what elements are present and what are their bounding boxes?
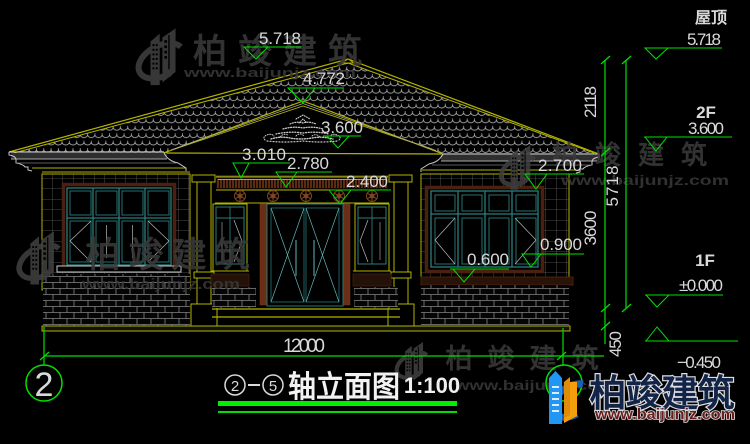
svg-text:5.718: 5.718 <box>259 29 301 48</box>
svg-text:2.780: 2.780 <box>287 154 329 173</box>
svg-text:2.700: 2.700 <box>538 156 582 175</box>
svg-text:2: 2 <box>35 366 54 404</box>
svg-text:5718: 5718 <box>603 166 622 207</box>
svg-text:轴立面图: 轴立面图 <box>288 370 400 404</box>
svg-text:5.718: 5.718 <box>687 30 721 49</box>
svg-text:±0.000: ±0.000 <box>679 276 723 295</box>
svg-text:4.772: 4.772 <box>303 69 345 88</box>
svg-text:12000: 12000 <box>283 336 325 357</box>
svg-text:2.400: 2.400 <box>346 172 388 191</box>
svg-text:3.010: 3.010 <box>242 145 286 164</box>
svg-text:竣: 竣 <box>128 235 163 275</box>
svg-text:2118: 2118 <box>581 86 600 118</box>
svg-text:竣: 竣 <box>488 343 516 374</box>
svg-text:柏: 柏 <box>446 344 473 374</box>
svg-text:筑: 筑 <box>214 236 249 275</box>
svg-text:建: 建 <box>171 236 206 275</box>
svg-text:屋顶: 屋顶 <box>695 9 727 27</box>
svg-text:柏: 柏 <box>85 236 120 275</box>
svg-text:0.900: 0.900 <box>540 235 582 254</box>
svg-text:5: 5 <box>269 378 277 395</box>
svg-text:3.600: 3.600 <box>321 118 363 137</box>
svg-text:3.600: 3.600 <box>688 119 724 138</box>
svg-text:0.600: 0.600 <box>467 250 509 269</box>
svg-text:www.baijunjz.com: www.baijunjz.com <box>560 172 729 188</box>
svg-text:www.baijunjz.com: www.baijunjz.com <box>594 406 735 423</box>
svg-text:www.baijunjz.com: www.baijunjz.com <box>81 276 240 293</box>
svg-text:竣: 竣 <box>595 140 621 170</box>
svg-text:1:100: 1:100 <box>404 373 460 398</box>
svg-text:筑: 筑 <box>681 140 707 170</box>
svg-text:2: 2 <box>231 378 239 395</box>
svg-text:450: 450 <box>606 331 625 357</box>
svg-text:1F: 1F <box>695 251 715 270</box>
svg-text:3600: 3600 <box>581 211 600 246</box>
svg-text:−0.450: −0.450 <box>677 353 721 372</box>
